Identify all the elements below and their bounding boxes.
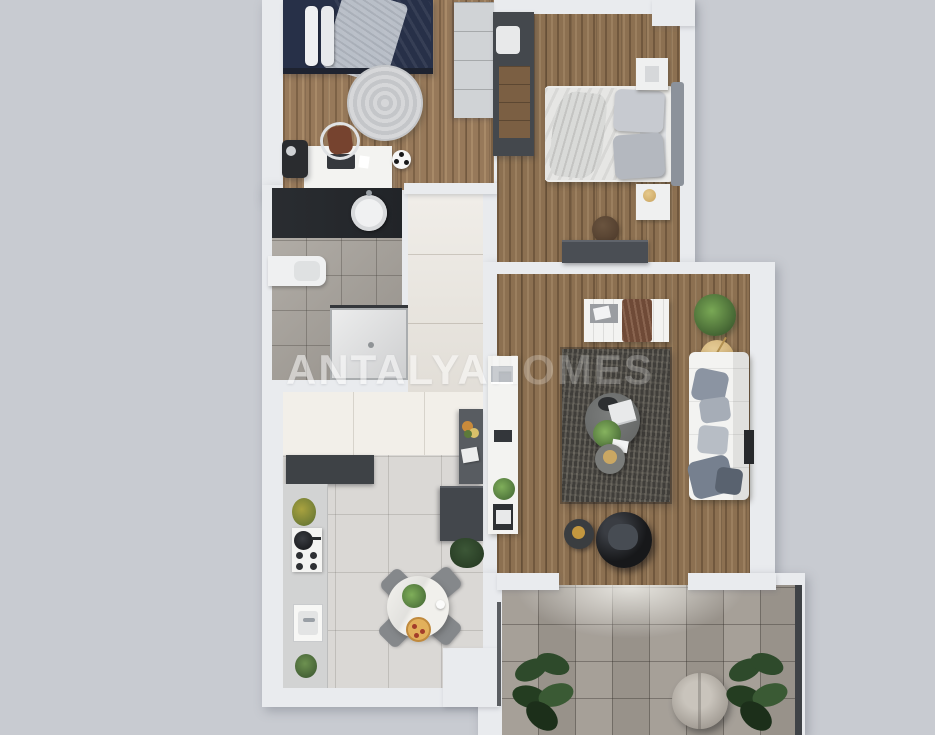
watermark: ANTALYA HOMES — [286, 348, 686, 392]
floor-plan: ANTALYA HOMES — [0, 0, 935, 735]
counter-plant — [295, 654, 317, 678]
folded-clothes — [496, 26, 520, 54]
bench-tray — [590, 304, 618, 323]
dresser — [562, 240, 648, 263]
papers — [461, 447, 479, 464]
table-plant — [402, 584, 426, 608]
gray-pillow — [613, 132, 666, 179]
nightstand-decor — [645, 66, 659, 82]
wardrobe-shelves — [499, 66, 530, 138]
pan-handle — [311, 537, 321, 540]
living-bottom-wall-right — [688, 573, 776, 590]
toilet-seat — [294, 261, 320, 281]
sofa-pillow — [698, 396, 731, 424]
kitchen-faucet — [303, 618, 315, 622]
bed-frame-edge — [283, 68, 433, 74]
counter-plant — [292, 498, 316, 526]
pizza — [406, 617, 431, 642]
sink-basin — [298, 611, 318, 635]
faucet — [366, 190, 372, 196]
console-plant — [493, 478, 515, 500]
tray-papers — [593, 305, 611, 320]
terrace-plant-left — [512, 652, 574, 732]
camera-lens — [286, 146, 296, 156]
desk-chair-seat — [326, 124, 354, 155]
table-lamp — [643, 189, 656, 202]
soccer-ball — [392, 150, 411, 169]
kitchen-corner-wall — [443, 648, 499, 707]
pillow — [305, 6, 318, 66]
tv-device — [494, 430, 512, 442]
gold-decor — [572, 526, 585, 539]
terrace-right-wall — [795, 585, 802, 735]
round-sink — [351, 195, 387, 231]
pillow — [321, 6, 334, 66]
wall-tv — [744, 430, 754, 464]
terrace-light-glow — [505, 585, 755, 643]
kitchen-tall-cabinet — [440, 486, 483, 541]
brown-throw — [622, 299, 652, 342]
brown-pouf — [592, 216, 619, 243]
nightstand-top — [636, 58, 668, 90]
terrace-plant-right — [726, 652, 790, 734]
wardrobe-bedroom1 — [454, 2, 494, 118]
terrace-pouf — [672, 673, 728, 729]
gold-dish — [603, 450, 617, 464]
chair-side-table — [564, 519, 594, 549]
terrace-left-wall-edge — [497, 602, 501, 706]
gray-pillow — [613, 89, 665, 134]
camera-bag — [282, 140, 308, 178]
hallway-top-wall — [404, 183, 497, 194]
white-book — [496, 510, 511, 524]
round-rug — [347, 65, 423, 141]
watermark-text-homes: HOMES — [490, 346, 654, 394]
frying-pan — [294, 531, 313, 550]
nesting-side-table — [595, 444, 625, 474]
bedroom2-wall-jog — [652, 0, 695, 26]
book-stack — [493, 504, 513, 530]
sofa-pillow — [697, 425, 729, 456]
kitchen-dark-plant — [450, 538, 484, 568]
entry-tile-floor — [283, 392, 483, 455]
swivel-chair-cushion — [608, 524, 638, 550]
kitchen-sink — [293, 604, 323, 642]
sofa-pillow — [714, 466, 743, 495]
toilet — [268, 256, 326, 286]
headboard — [671, 82, 684, 186]
flower-leaves — [464, 430, 472, 438]
cup — [436, 600, 445, 609]
potted-plant — [694, 294, 736, 336]
paper — [358, 155, 370, 168]
living-bottom-wall-left — [497, 573, 559, 590]
watermark-text-antalya: ANTALYA — [286, 346, 490, 394]
kitchen-dark-counter — [286, 455, 374, 484]
console-sideboard — [459, 409, 483, 484]
